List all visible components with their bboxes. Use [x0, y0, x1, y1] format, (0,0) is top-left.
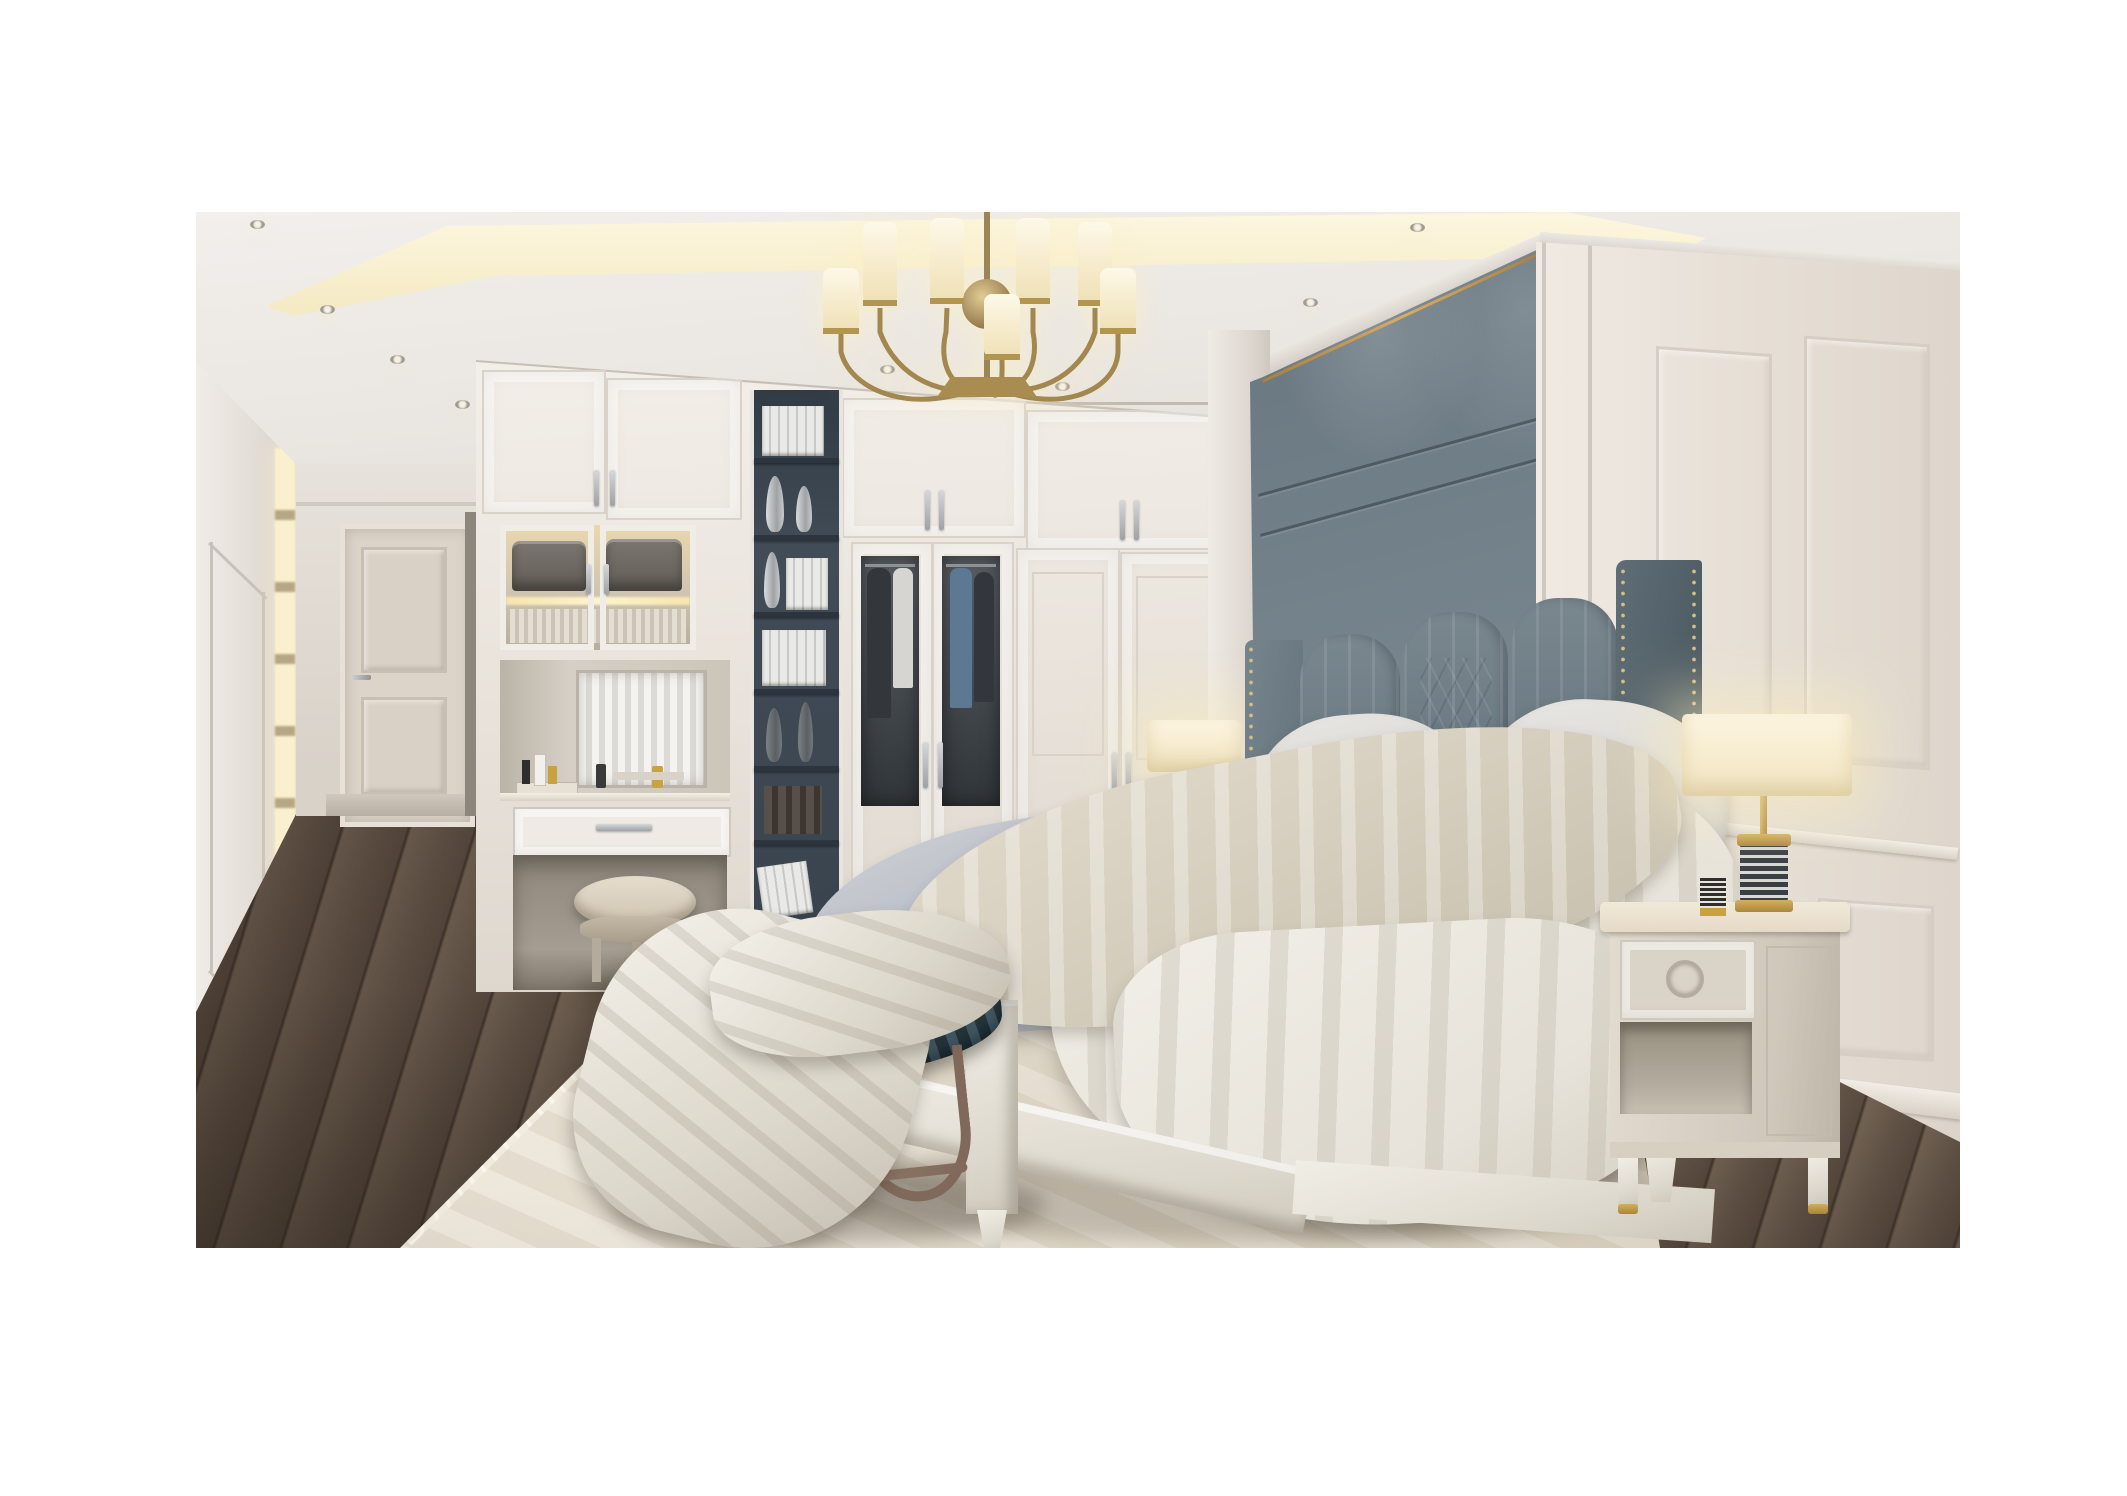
silver-vase — [796, 486, 812, 532]
page: { "image": { "kind": "photorealistic 3d … — [0, 0, 2127, 1496]
ceiling-spotlight — [1303, 298, 1318, 307]
shelf-board — [754, 689, 839, 694]
bedroom-render-photo — [196, 212, 1960, 1248]
white-vase — [764, 552, 780, 608]
upper-cabinet-door — [606, 378, 742, 520]
chandelier-hub — [937, 377, 1037, 397]
wall-molding — [296, 502, 476, 506]
nightstand-leg — [1808, 1158, 1828, 1206]
lit-display-niche — [275, 448, 295, 868]
wall-panel — [1804, 336, 1930, 771]
cabinet-handle — [594, 470, 599, 506]
drawer-handle — [596, 824, 652, 831]
hanging-suit — [867, 568, 891, 718]
glass-door-frame — [600, 525, 696, 650]
shelf-board — [754, 612, 839, 617]
chandelier — [796, 212, 1176, 472]
closet-rod — [946, 564, 996, 567]
wardrobe-glass-insert — [861, 556, 919, 806]
ring-pull-handle — [1666, 960, 1704, 998]
side-panel — [1766, 946, 1832, 1136]
door-panel — [361, 547, 447, 673]
hanging-shirt — [950, 568, 972, 708]
right-lamp-base — [1740, 842, 1788, 904]
right-lamp-shade — [1682, 714, 1852, 796]
silver-vase — [766, 476, 784, 532]
baseboard — [326, 794, 486, 816]
vanity-countertop — [500, 793, 730, 801]
cabinet-side-shadow — [465, 512, 477, 816]
ceiling-spotlight — [390, 355, 405, 364]
chandelier-stem — [984, 212, 990, 282]
right-lamp-cap — [1735, 900, 1793, 912]
hanging-suit — [974, 572, 994, 702]
dark-vase — [766, 708, 782, 762]
shelf-board — [754, 840, 839, 845]
wall-panel-groove — [208, 542, 268, 600]
books — [762, 630, 826, 686]
brass-foot-cap — [1808, 1204, 1828, 1214]
ceiling-spotlight — [1410, 223, 1425, 232]
hanging-shirt — [893, 568, 913, 688]
cabinet-handle — [1120, 500, 1125, 540]
brass-foot-cap — [1618, 1204, 1638, 1214]
dark-books — [764, 786, 822, 834]
cosmetic-bottle — [522, 760, 530, 784]
closet-rod — [865, 564, 915, 567]
dark-vase — [798, 702, 813, 762]
corridor-door — [340, 524, 475, 827]
cabinet-handle — [1134, 500, 1139, 540]
ceiling-spotlight — [250, 220, 265, 229]
cabinet-handle — [586, 564, 591, 594]
right-nightstand — [1610, 928, 1840, 1146]
wardrobe-handle — [923, 742, 928, 788]
ceiling-spotlight — [320, 305, 335, 314]
wardrobe-handle — [938, 742, 943, 788]
shelf-board — [754, 766, 839, 771]
stool-leg — [592, 938, 601, 982]
cosmetic-bottle — [534, 754, 546, 786]
glass-door-frame — [500, 525, 594, 650]
right-lamp-cap — [1737, 834, 1791, 846]
vanity-drawer — [513, 807, 731, 857]
cabinet-handle — [925, 490, 930, 530]
upper-cabinet-door — [482, 370, 606, 514]
striped-cup — [1700, 878, 1726, 916]
door-panel-inset — [1032, 572, 1104, 756]
nightstand-leg — [1618, 1158, 1638, 1206]
nightstand-apron — [1610, 1142, 1840, 1158]
wall-panel-groove — [210, 542, 213, 972]
perfume-bottle — [548, 766, 557, 784]
shelf-board — [754, 535, 839, 540]
ceiling-spotlight — [455, 400, 470, 409]
cabinet-handle — [939, 490, 944, 530]
door-panel — [361, 697, 447, 795]
open-shelf — [1620, 1022, 1752, 1114]
figurine — [596, 764, 606, 788]
corridor-back-wall — [296, 464, 476, 816]
vanity-items — [614, 772, 684, 780]
books — [786, 558, 828, 610]
cabinet-handle — [610, 470, 615, 506]
wardrobe-glass-insert — [942, 556, 1000, 806]
cabinet-handle — [604, 564, 609, 594]
door-handle — [351, 675, 371, 680]
